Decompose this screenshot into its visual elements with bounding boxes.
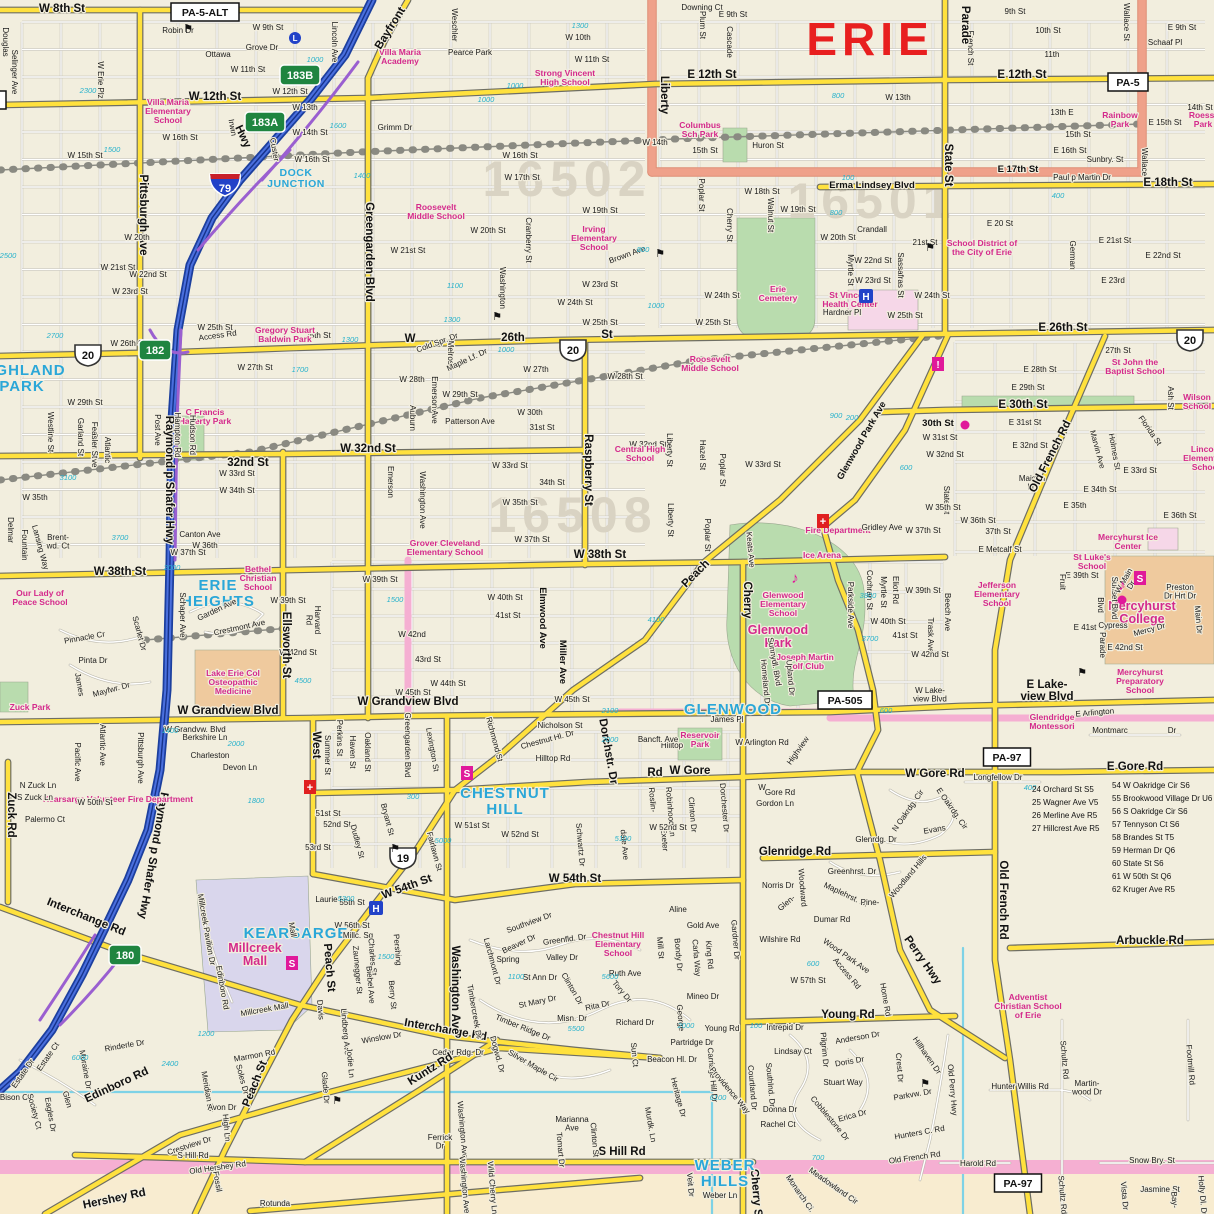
svg-text:PA-97: PA-97: [993, 752, 1022, 764]
hampton-rd-label: Hampton Rd: [173, 413, 182, 458]
street-index-entry: 25 Wagner Ave V5: [1032, 798, 1099, 807]
svg-text:H: H: [862, 292, 869, 303]
block-number: 5300: [338, 894, 356, 903]
block-number: 1100: [508, 972, 525, 981]
e-21st-st-label: E 21st St: [1099, 236, 1132, 245]
w-15th-st-label: W 15th St: [67, 151, 103, 160]
street-index-entry: 59 Herman Dr Q6: [1112, 846, 1176, 855]
gore-rd-label: Gore Rd: [765, 788, 795, 797]
svg-text:♪: ♪: [791, 570, 799, 587]
w-gore-label: W Gore: [670, 765, 711, 777]
block-number: 100: [750, 1021, 763, 1030]
wilshire-rd-label: Wilshire Rd: [760, 935, 801, 944]
block-number: 900: [830, 411, 843, 420]
myrtle-st-label: Myrtle St: [879, 576, 888, 608]
block-number: 2100: [601, 706, 620, 715]
block-number: 600: [900, 463, 913, 472]
greengarden-blvd-label: Greengarden Blvd: [403, 713, 412, 778]
paul-p-martin-dr-label: Paul p Martin Dr: [1053, 173, 1111, 182]
w-33rd-st-label: W 33rd St: [492, 461, 528, 470]
26th-label: 26th: [501, 332, 525, 344]
emerson-ave-label: Emerson Ave: [430, 376, 439, 424]
w-16th-st-label: W 16th St: [294, 155, 330, 164]
street-index-entry: 24 Orchard St S5: [1032, 785, 1094, 794]
shopping-icon: S: [1134, 571, 1146, 585]
block-number: 1500: [387, 595, 405, 604]
block-number: 100: [842, 173, 855, 182]
street-index-entry: 54 W Oakridge Cir S6: [1112, 781, 1190, 790]
shield-box-pa-5: PA-5: [0, 91, 6, 109]
w-32nd-st-label: W 32nd St: [926, 450, 964, 459]
svg-text:⚑: ⚑: [920, 1078, 930, 1090]
s-zuck-ln-label: S Zuck Ln: [17, 793, 53, 802]
myrtle-st-label: Myrtle St: [846, 254, 855, 286]
fire-icon: +: [817, 514, 829, 528]
mineo-dr-label: Mineo Dr: [687, 992, 720, 1001]
rachel-ct-label: Rachel Ct: [760, 1120, 796, 1129]
shopping-icon: S: [286, 956, 298, 970]
block-number: 1000: [478, 95, 496, 104]
fire-icon: +: [304, 780, 316, 794]
w-38th-st-label: W 38th St: [574, 549, 627, 561]
svg-text:S: S: [1137, 574, 1144, 585]
shield-box-pa-5: PA-5: [1108, 73, 1148, 91]
school-district-of-the-city-of-erie-label: School District ofthe City of Erie: [947, 238, 1018, 257]
poplar-st-label: Poplar St: [697, 179, 706, 213]
villa-maria-academy-label: Villa MariaAcademy: [379, 47, 421, 66]
w-39th-st-label: W 39th St: [362, 575, 398, 584]
hazel-st-label: Hazel St: [698, 440, 707, 471]
block-number: 600: [880, 706, 893, 715]
palermo-ct-label: Palermo Ct: [25, 815, 66, 824]
city-name-label: ERIE: [806, 13, 933, 65]
w-13th-label: W 13th: [292, 103, 317, 112]
hospital-icon: H: [369, 901, 383, 915]
brent-wd-ct-label: Brent-wd. Ct: [46, 533, 70, 550]
walnut-st-label: Walnut St: [766, 198, 775, 233]
hardner-pl-label: Hardner Pl: [823, 308, 861, 317]
our-lady-of-peace-school-label: Our Lady ofPeace School: [12, 588, 67, 607]
beech-ave-label: Beech Ave: [943, 593, 952, 632]
weschler-label: Weschler: [450, 8, 459, 42]
shield-us-20: 20: [75, 345, 101, 366]
w-21st-st-label: W 21st St: [391, 246, 426, 255]
partridge-dr-label: Partridge Dr: [670, 1038, 713, 1047]
shield-us-20: 20: [560, 340, 586, 361]
34th-st-label: 34th St: [539, 478, 565, 487]
preston-dr-hrt-dr-label: PrestonDr Hrt Dr: [1164, 583, 1196, 600]
block-number: 1000: [498, 345, 516, 354]
dot-icon: [1118, 596, 1127, 605]
w-27th-st-label: W 27th St: [237, 363, 273, 372]
w-40th-st-label: W 40th St: [487, 593, 523, 602]
27th-st-label: 27th St: [1105, 346, 1131, 355]
svg-text:⚑: ⚑: [390, 843, 400, 855]
st-ann-dr-label: St Ann Dr: [523, 973, 558, 982]
map-canvas[interactable]: Erie, Pennsylvania street map 1650116502…: [0, 0, 1214, 1214]
svg-text:+: +: [820, 516, 826, 528]
patterson-ave-label: Patterson Ave: [445, 417, 495, 426]
glenrdg-dr-label: Glenrdg. Dr: [855, 835, 897, 844]
svg-text:20: 20: [1184, 335, 1196, 347]
e-30th-st-label: E 30th St: [998, 399, 1047, 411]
w-12th-st-label: W 12th St: [272, 87, 308, 96]
w-34th-st-label: W 34th St: [219, 486, 255, 495]
w-18th-st-label: W 18th St: [744, 187, 780, 196]
downing-ct-label: Downing Ct: [681, 3, 723, 12]
wallace-st-label: Wallace St: [1122, 3, 1131, 42]
w-31st-st-label: W 31st St: [923, 433, 958, 442]
w-19th-st-label: W 19th St: [582, 206, 618, 215]
school-flag-icon: ⚑: [332, 1095, 342, 1107]
block-number: 1300: [342, 335, 360, 344]
street-index-entry: 58 Brandes St T5: [1112, 833, 1175, 842]
lincoln-ave-label: Lincoln Ave: [330, 22, 339, 63]
columbus-sch-park-label: ColumbusSch Park: [679, 120, 721, 139]
e-16th-st-label: E 16th St: [1054, 146, 1088, 155]
w-23rd-st-label: W 23rd St: [855, 276, 891, 285]
w-23rd-st-label: W 23rd St: [582, 280, 618, 289]
roosevelt-middle-school-label: RooseveltMiddle School: [681, 354, 739, 373]
s-hill-rd-label: S Hill Rd: [177, 1151, 208, 1160]
beacon-hl-dr-label: Beacon Hl. Dr: [647, 1055, 697, 1064]
garland-st-label: Garland St: [76, 418, 85, 457]
pine-label: Pine-: [861, 898, 880, 907]
e-42nd-st-label: E 42nd St: [1107, 643, 1143, 652]
fruit-label: Fruit: [1058, 574, 1067, 591]
block-number: 1800: [248, 796, 266, 805]
e-28th-st-label: E 28th St: [1024, 365, 1058, 374]
hunter-willis-rd-label: Hunter Willis Rd: [991, 1082, 1048, 1091]
shield-exit-180: 180: [109, 945, 141, 965]
w-38th-st-label: W 38th St: [94, 566, 147, 578]
atlantic-label: Atlantic: [103, 437, 112, 463]
street-index-entry: 26 Merline Ave R5: [1032, 811, 1098, 820]
gordon-ln-label: Gordon Ln: [756, 799, 794, 808]
block-number: 1200: [198, 1029, 216, 1038]
e-18th-st-label: E 18th St: [1143, 177, 1192, 189]
block-number: 6100: [710, 1093, 728, 1102]
e-20-st-label: E 20 St: [987, 219, 1014, 228]
poplar-st-label: Poplar St: [703, 519, 712, 553]
richard-dr-label: Richard Dr: [616, 1018, 655, 1027]
w-label: W: [758, 783, 766, 792]
info-icon: !: [932, 357, 944, 371]
block-number: 600: [807, 959, 820, 968]
glendridge-montessori-label: GlendridgeMontessori: [1029, 712, 1074, 731]
cypress-label: Cypress: [1098, 621, 1127, 630]
w-39th-st-label: W 39th St: [905, 586, 941, 595]
w-8th-st-label: W 8th St: [39, 3, 85, 15]
douglas-label: Douglas: [1, 27, 10, 56]
svg-text:183B: 183B: [287, 70, 313, 82]
s-hill-rd-label: S Hill Rd: [598, 1146, 645, 1158]
washington-ave-label: Washington Ave: [449, 946, 461, 1035]
hilltop-rd-label: Hilltop Rd: [536, 754, 571, 763]
bay-label: Bay-: [1169, 1191, 1179, 1209]
w-13th-label: W 13th: [885, 93, 910, 102]
15th-st-label: 15th St: [692, 146, 718, 155]
stuart-way-label: Stuart Way: [823, 1078, 862, 1087]
gold-ave-label: Gold Ave: [687, 921, 720, 930]
rotunda-label: Rotunda: [260, 1199, 291, 1208]
emerson-label: Emerson: [386, 466, 395, 498]
block-number: 2400: [161, 1059, 180, 1068]
block-number: 700: [812, 1153, 825, 1162]
dot-icon: [961, 421, 970, 430]
grove-dr-label: Grove Dr: [246, 43, 279, 52]
st-label: St: [601, 329, 613, 341]
music-icon: ♪: [791, 570, 799, 587]
e-26th-st-label: E 26th St: [1038, 322, 1087, 334]
hudson-rd-label: Hudson Rd: [188, 415, 197, 455]
w-37th-st-label: W 37th St: [170, 548, 206, 557]
svg-text:79: 79: [219, 183, 231, 195]
huron-st-label: Huron St: [752, 141, 784, 150]
w-27th-label: W 27th: [523, 365, 548, 374]
svg-text:PA-505: PA-505: [828, 695, 863, 707]
zuck-rd-label: Zuck Rd: [5, 792, 17, 837]
block-number: 300: [407, 792, 420, 801]
block-number: 2300: [79, 86, 98, 95]
valley-dr-label: Valley Dr: [546, 953, 578, 962]
music-icon: ♪: [1118, 577, 1126, 594]
e-23rd-label: E 23rd: [1101, 276, 1125, 285]
w-37th-st-label: W 37th St: [905, 526, 941, 535]
w-32nd-st-label: W 32nd St: [340, 443, 396, 455]
w-35th-label: W 35th: [22, 493, 47, 502]
w-42nd-label: W 42nd: [398, 630, 426, 639]
w-33rd-st-label: W 33rd St: [745, 460, 781, 469]
block-number: 1400: [162, 726, 180, 735]
w-16th-st-label: W 16th St: [502, 151, 538, 160]
w-45th-st-label: W 45th St: [554, 695, 590, 704]
shield-us-20: 20: [1177, 330, 1203, 351]
poplar-st-label: Poplar St: [718, 454, 727, 488]
greenhrst-dr-label: Greenhrst. Dr: [828, 867, 877, 876]
e-9th-st-label: E 9th St: [719, 10, 748, 19]
block-number: 1100: [447, 281, 464, 290]
block-number: 400: [1052, 191, 1065, 200]
wilson-school-label: WilsonSchool: [1183, 392, 1211, 411]
block-number: 4500: [295, 676, 313, 685]
school-flag-icon: ⚑: [925, 242, 935, 254]
52nd-st-label: 52nd St: [323, 820, 351, 829]
plum-st-label: Plum St: [698, 11, 707, 40]
w-lake-view-blvd-label: W Lake-view Blvd: [913, 686, 947, 703]
w-19th-st-label: W 19th St: [780, 205, 816, 214]
w-grandview-blvd-label: W Grandview Blvd: [358, 696, 459, 708]
post-ave-label: Post Ave: [153, 414, 162, 446]
street-index-entry: 27 Hillcrest Ave R5: [1032, 824, 1100, 833]
sassafras-st-label: Sassafras St: [896, 252, 905, 298]
shield-exit-182: 182: [139, 340, 171, 360]
atlantic-ave-label: Atlantic Ave: [98, 724, 107, 766]
svg-text:L: L: [293, 34, 298, 43]
parkside-ave-label: Parkside Ave: [846, 582, 855, 629]
n-zuck-ln-label: N Zuck Ln: [20, 781, 56, 790]
svg-text:!: !: [936, 360, 939, 371]
sunbry-st-label: Sunbry. St: [1087, 155, 1125, 164]
block-number: 3100: [60, 473, 78, 482]
w-28th-st-label: W 28th St: [607, 372, 643, 381]
svg-text:182: 182: [146, 345, 164, 357]
svg-text:PA-97: PA-97: [1004, 1178, 1033, 1190]
norris-dr-label: Norris Dr: [762, 881, 794, 890]
w-29th-st-label: W 29th St: [442, 390, 478, 399]
w-54th-st-label: W 54th St: [549, 873, 602, 885]
w-51st-st-label: W 51st St: [455, 821, 490, 830]
block-number: 1300: [444, 315, 462, 324]
ottawa-label: Ottawa: [205, 50, 231, 59]
rd-label: Rd: [647, 767, 662, 779]
interstate-shield-top: [210, 174, 240, 179]
w-52nd-st-label: W 52nd St: [501, 830, 539, 839]
w-22nd-st-label: W 22nd St: [854, 256, 892, 265]
block-number: 1000: [507, 81, 525, 90]
crandall-label: Crandall: [857, 225, 887, 234]
pittsburgh-ave-label: Pittsburgh Ave: [136, 732, 145, 784]
block-number: 1000: [648, 301, 666, 310]
avon-dr-label: Avon Dr: [208, 1103, 237, 1112]
intrepid-dr-label: Intrepid Dr: [766, 1023, 804, 1032]
w-17th-st-label: W 17th St: [504, 173, 540, 182]
young-rd-label: Young Rd: [821, 1009, 874, 1021]
e-lake-view-blvd-label: E Lake-view Blvd: [1020, 679, 1073, 703]
washington-label: Washington: [498, 267, 507, 309]
w-35th-st-label: W 35th St: [925, 503, 961, 512]
w-12th-st-label: W 12th St: [189, 91, 242, 103]
bethel-christian-school-label: BethelChristianSchool: [240, 564, 277, 592]
w-20th-st-label: W 20th St: [470, 226, 506, 235]
w-11th-st-label: W 11th St: [231, 65, 266, 74]
block-number: 1600: [330, 121, 348, 130]
st-luke-s-school-label: St Luke'sSchool: [1073, 552, 1111, 571]
misn-dr-label: Misn. Dr: [557, 1014, 587, 1023]
w-erie-plz-label: W Erie Plz: [96, 61, 105, 98]
e-39th-st-label: E 39th St: [1066, 571, 1100, 580]
state-st-label: State St: [942, 144, 954, 187]
st-john-the-baptist-school-label: St John theBaptist School: [1105, 357, 1165, 376]
miller-ave-label: Miller Ave: [557, 640, 568, 684]
9th-st-label: 9th St: [1005, 7, 1027, 16]
ice-arena-label: Ice Arena: [803, 550, 841, 560]
liberty-label: Liberty: [658, 76, 670, 115]
c-francis-hagerty-park-label: C FrancisHagerty Park: [179, 407, 232, 426]
block-number: 5500: [568, 1024, 586, 1033]
w-23rd-st-label: W 23rd St: [112, 287, 148, 296]
block-number: 800: [830, 208, 843, 217]
charleston-label: Charleston: [191, 751, 230, 760]
route-box-icon: [0, 91, 6, 109]
w-37th-st-label: W 37th St: [514, 535, 550, 544]
summer-st-label: Summer St: [323, 735, 332, 776]
e-36th-st-label: E 36th St: [1164, 511, 1198, 520]
13th-e-label: 13th E: [1050, 108, 1073, 117]
grimm-dr-label: Grimm Dr: [378, 123, 413, 132]
selinger-ave-label: Selinger Ave: [10, 50, 19, 95]
w-label: W: [405, 333, 416, 345]
block-number: 1500: [104, 145, 122, 154]
lindsay-ct-label: Lindsay Ct: [774, 1047, 813, 1056]
wallace-label: Wallace: [1140, 148, 1149, 177]
washington-ave-label: Washington Ave: [418, 471, 427, 529]
w-50th-st-label: W 50th St: [77, 798, 113, 807]
liberty-st-label: Liberty St: [666, 503, 675, 538]
svg-text:20: 20: [82, 350, 94, 362]
gridley-ave-label: Gridley Ave: [862, 523, 903, 532]
school-flag-icon: ⚑: [390, 843, 400, 855]
43rd-st-label: 43rd St: [415, 655, 442, 664]
hospital-icon: H: [859, 289, 873, 303]
shield-box-pa-97: PA-97: [984, 748, 1031, 766]
block-number: 2500: [0, 251, 17, 260]
auburn-label: Auburn: [408, 405, 417, 431]
block-number: 1400: [354, 171, 372, 180]
block-number: 1000: [307, 55, 325, 64]
svg-text:183A: 183A: [252, 117, 278, 129]
schaaf-pl-label: Schaaf Pl: [1148, 38, 1182, 47]
41st-st-label: 41st St: [496, 611, 522, 620]
perkins-st-label: Perkins St: [335, 720, 344, 757]
montmarc-label: Montmarc: [1092, 726, 1128, 735]
pearce-park-label: Pearce Park: [448, 48, 493, 57]
e-12th-st-label: E 12th St: [687, 69, 736, 81]
pittsburgh-ave-label: Pittsburgh Ave: [137, 175, 149, 256]
w-16th-st-label: W 16th St: [162, 133, 198, 142]
e-35th-label: E 35th: [1063, 501, 1086, 510]
street-index-entry: 57 Tennyson Ct S6: [1112, 820, 1180, 829]
shield-box-pa-505: PA-505: [818, 691, 872, 709]
e-31st-st-label: E 31st St: [1009, 418, 1042, 427]
w-28th-label: W 28th: [399, 375, 424, 384]
w-25th-st-label: W 25th St: [887, 311, 923, 320]
31st-st-label: 31st St: [530, 423, 556, 432]
shopping-icon: S: [461, 766, 473, 780]
erie-street-map[interactable]: 165011650216508W 8th StW 12th StW 12th S…: [0, 0, 1214, 1214]
e-33rd-st-label: E 33rd St: [1123, 466, 1157, 475]
block-number: 1500: [378, 952, 396, 961]
cherry-st-label: Cherry St: [725, 208, 734, 243]
nicholson-st-label: Nicholson St: [538, 721, 584, 730]
zuck-park-label: Zuck Park: [10, 702, 51, 712]
e-22nd-st-label: E 22nd St: [1145, 251, 1181, 260]
aline-label: Aline: [669, 905, 687, 914]
block-number: 2000: [601, 735, 620, 744]
roosevelt-middle-school-label: RooseveltMiddle School: [407, 202, 465, 221]
w-22nd-st-label: W 22nd St: [129, 270, 167, 279]
e-17th-st-label: E 17th St: [998, 164, 1039, 175]
strong-vincent-high-school-label: Strong VincentHigh School: [535, 68, 595, 87]
weber-ln-label: Weber Ln: [703, 1191, 738, 1200]
w-39th-st-label: W 39th St: [270, 596, 306, 605]
w-35th-st-label: W 35th St: [502, 498, 538, 507]
svg-text:⚑: ⚑: [1077, 667, 1087, 679]
e-12th-st-label: E 12th St: [997, 69, 1046, 81]
raspberry-st-label: Raspberry St: [582, 434, 594, 506]
e-34th-st-label: E 34th St: [1084, 485, 1118, 494]
street-index-entry: 62 Kruger Ave R5: [1112, 885, 1176, 894]
school-flag-icon: ⚑: [492, 311, 502, 323]
w-14th-label: W 14th: [642, 138, 667, 147]
block-number: 800: [637, 245, 650, 254]
canton-ave-label: Canton Ave: [179, 530, 221, 539]
e-15th-st-label: E 15th St: [1149, 118, 1183, 127]
e-32nd-st-label: E 32nd St: [1012, 441, 1048, 450]
block-number: 2000: [677, 1021, 696, 1030]
spring-label: Spring: [496, 955, 519, 964]
berkshire-ln-label: Berkshire Ln: [183, 733, 228, 742]
